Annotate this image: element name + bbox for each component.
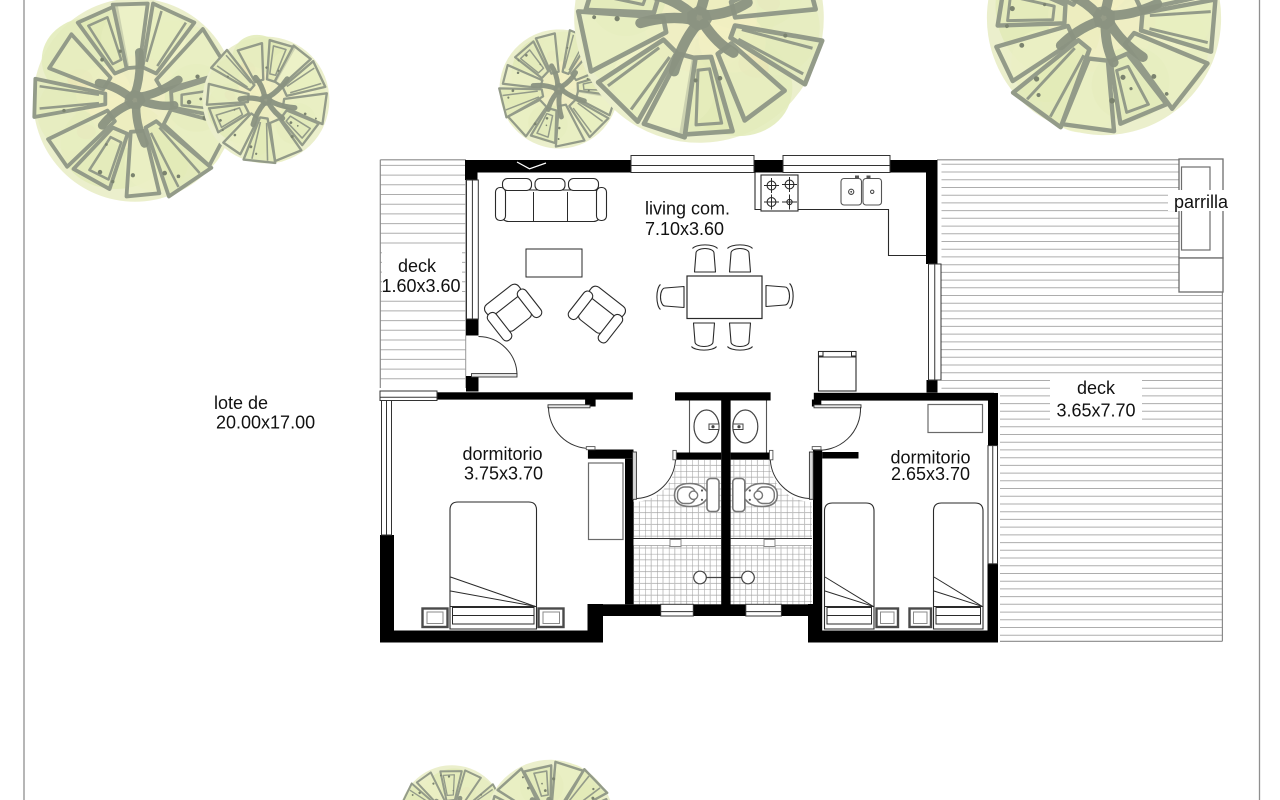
- svg-text:lote de: lote de: [214, 393, 268, 413]
- svg-text:living com.: living com.: [645, 199, 730, 219]
- svg-text:20.00x17.00: 20.00x17.00: [216, 413, 315, 433]
- svg-text:1.60x3.60: 1.60x3.60: [381, 276, 460, 296]
- svg-text:deck: deck: [398, 256, 437, 276]
- svg-text:2.65x3.70: 2.65x3.70: [891, 464, 970, 484]
- svg-text:deck: deck: [1077, 378, 1116, 398]
- svg-text:3.75x3.70: 3.75x3.70: [464, 464, 543, 484]
- svg-text:7.10x3.60: 7.10x3.60: [645, 219, 724, 239]
- svg-text:parrilla: parrilla: [1174, 192, 1229, 212]
- svg-text:3.65x7.70: 3.65x7.70: [1056, 401, 1135, 421]
- svg-text:dormitorio: dormitorio: [463, 444, 543, 464]
